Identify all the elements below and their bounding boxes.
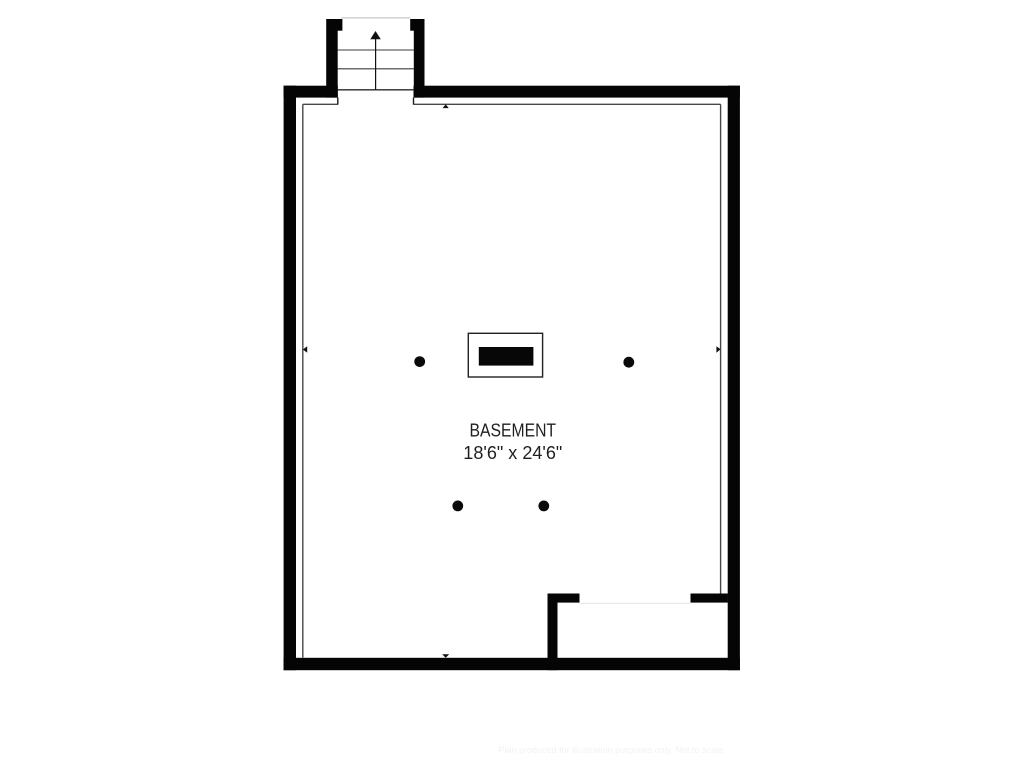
svg-text:BASEMENT: BASEMENT: [470, 420, 557, 441]
svg-text:Plan produced for illustration: Plan produced for illustration purposes …: [499, 745, 726, 755]
svg-text:18'6" x 24'6": 18'6" x 24'6": [463, 442, 562, 463]
